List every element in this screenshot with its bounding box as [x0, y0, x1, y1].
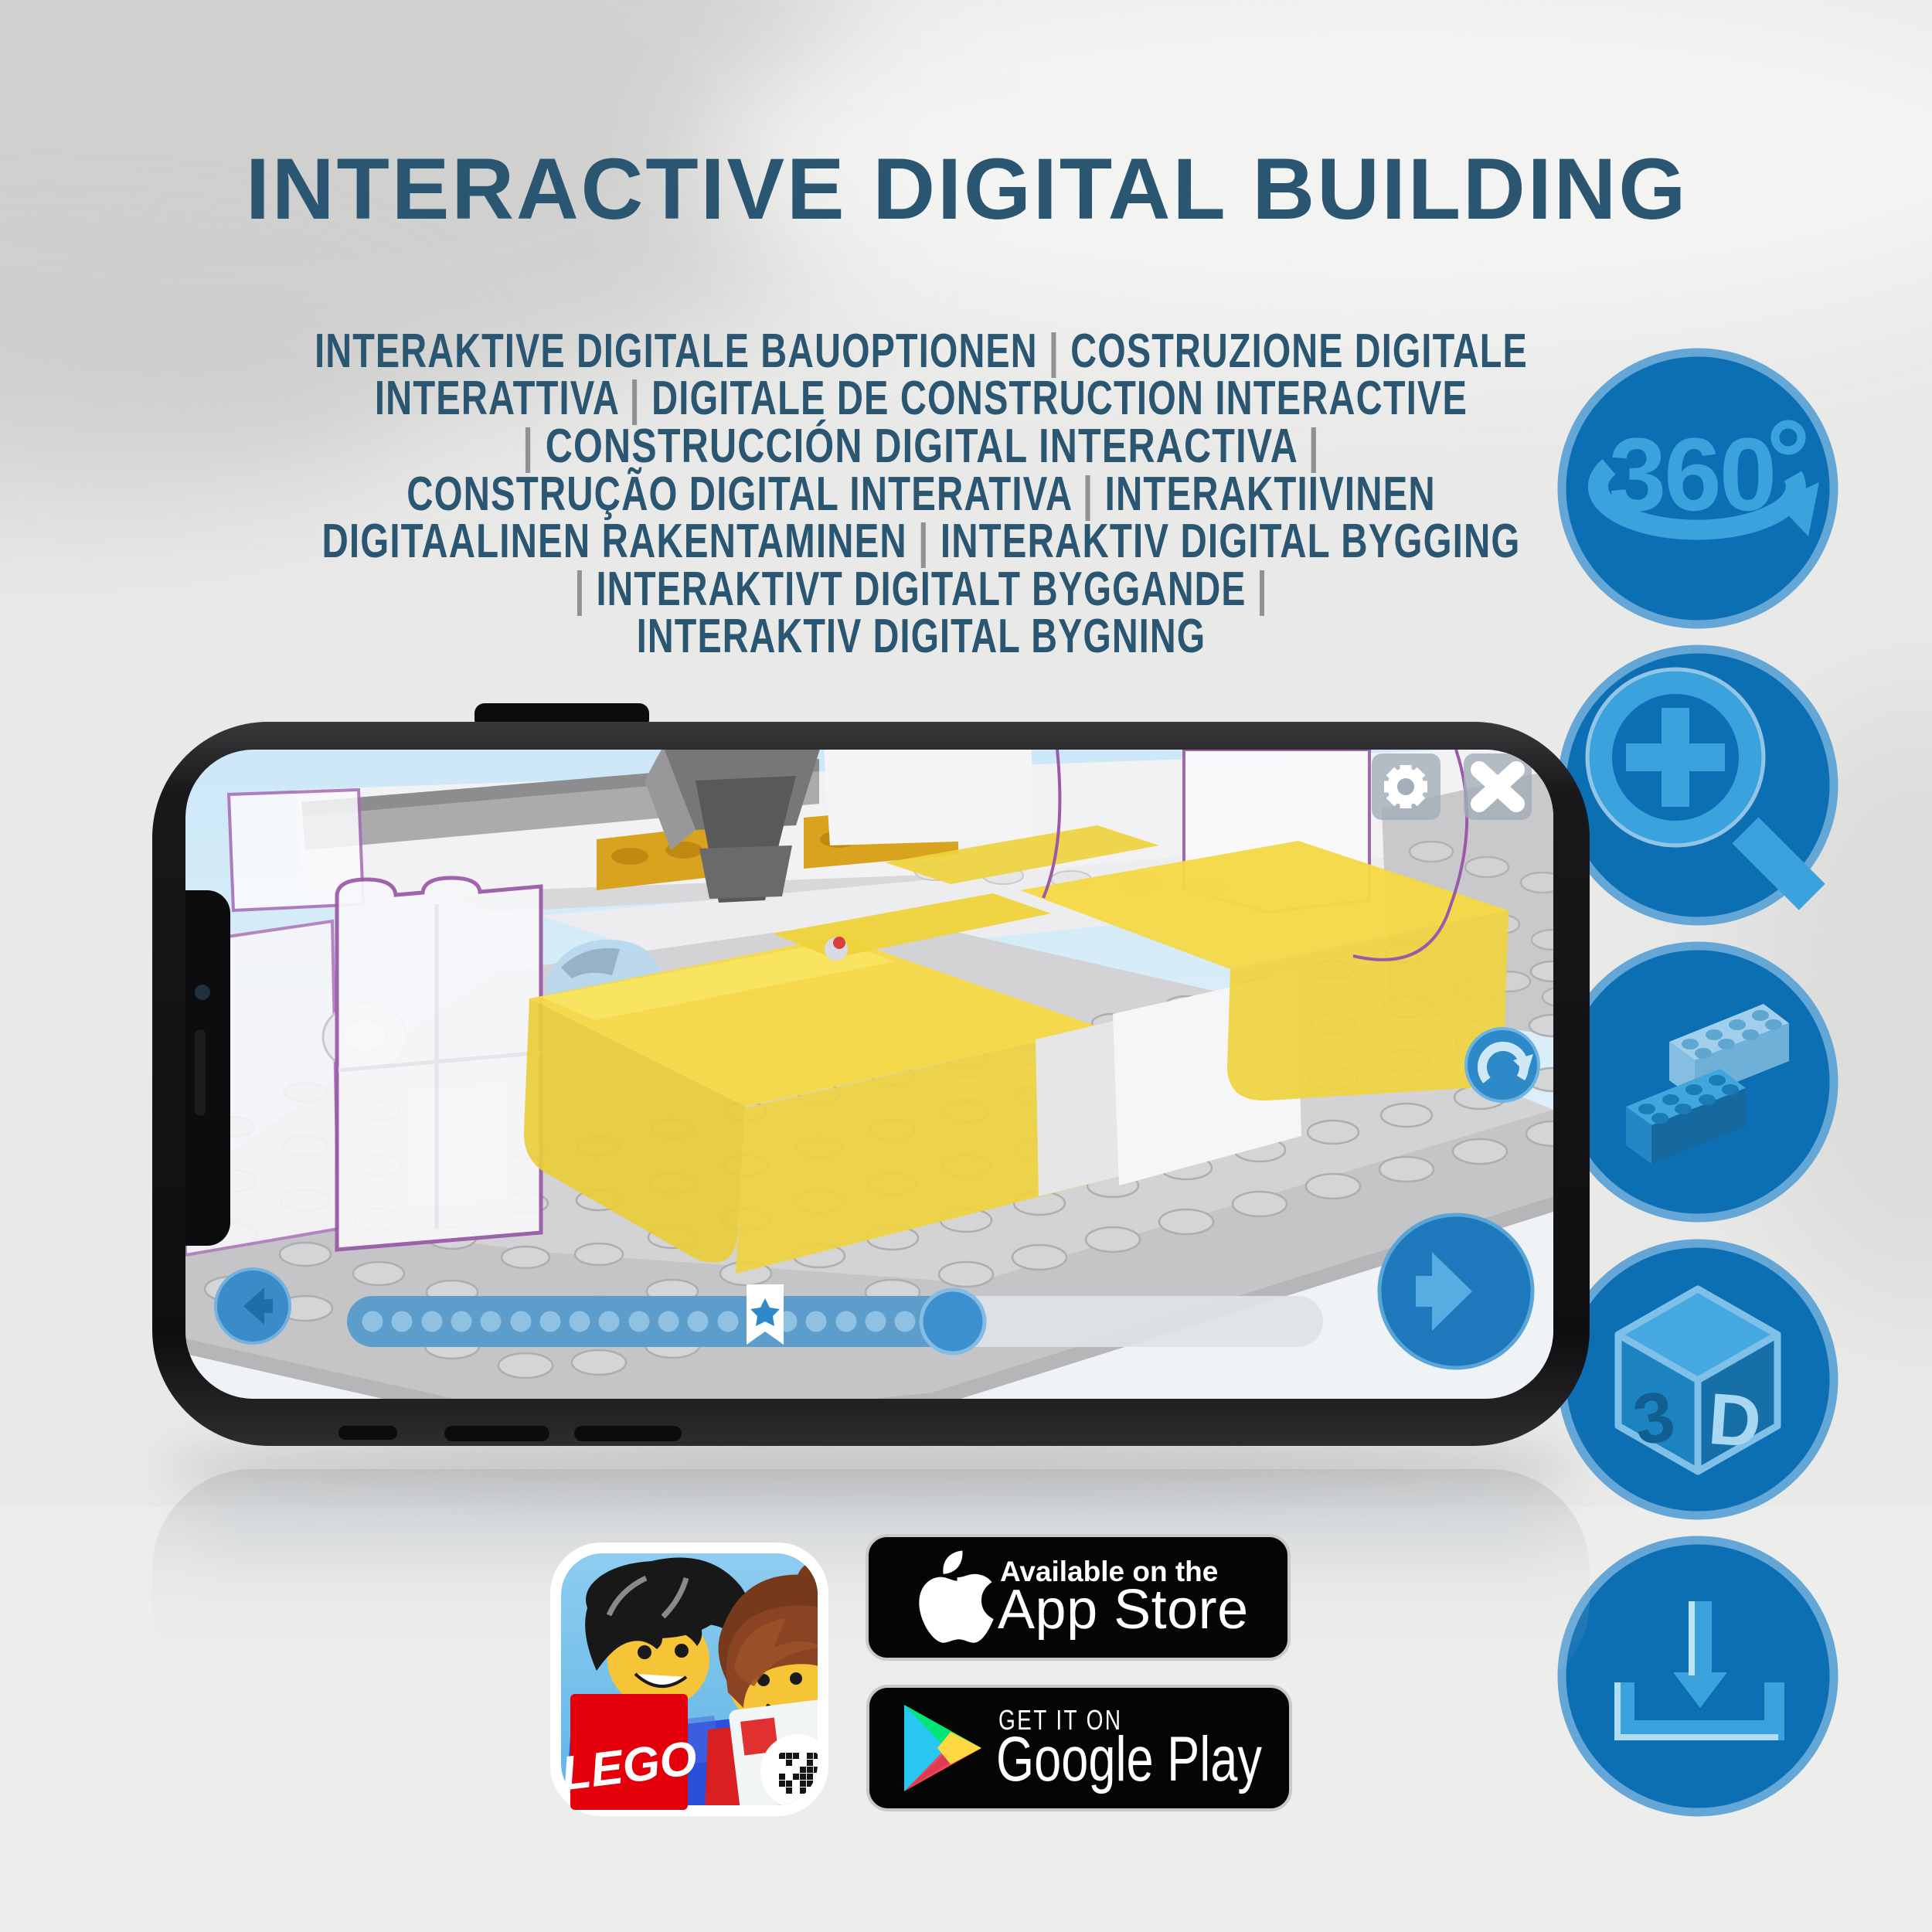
svg-text:360: 360	[1609, 417, 1775, 532]
svg-text:INTERACTIVE DIGITAL BUILDING: INTERACTIVE DIGITAL BUILDING	[246, 141, 1688, 237]
svg-text:INTERATTIVA | DIGITALE DE CONS: INTERATTIVA | DIGITALE DE CONSTRUCTION I…	[375, 371, 1468, 426]
svg-text:Google Play: Google Play	[996, 1723, 1262, 1794]
svg-text:D: D	[1706, 1378, 1764, 1462]
svg-text:| CONSTRUCCIÓN DIGITAL INTERAC: | CONSTRUCCIÓN DIGITAL INTERACTIVA |	[522, 419, 1319, 473]
svg-text:INTERAKTIV DIGITAL BYGNING: INTERAKTIV DIGITAL BYGNING	[637, 609, 1206, 663]
svg-text:App Store: App Store	[998, 1579, 1249, 1641]
svg-text:DIGITAALINEN RAKENTAMINEN | IN: DIGITAALINEN RAKENTAMINEN | INTERAKTIV D…	[321, 514, 1520, 569]
